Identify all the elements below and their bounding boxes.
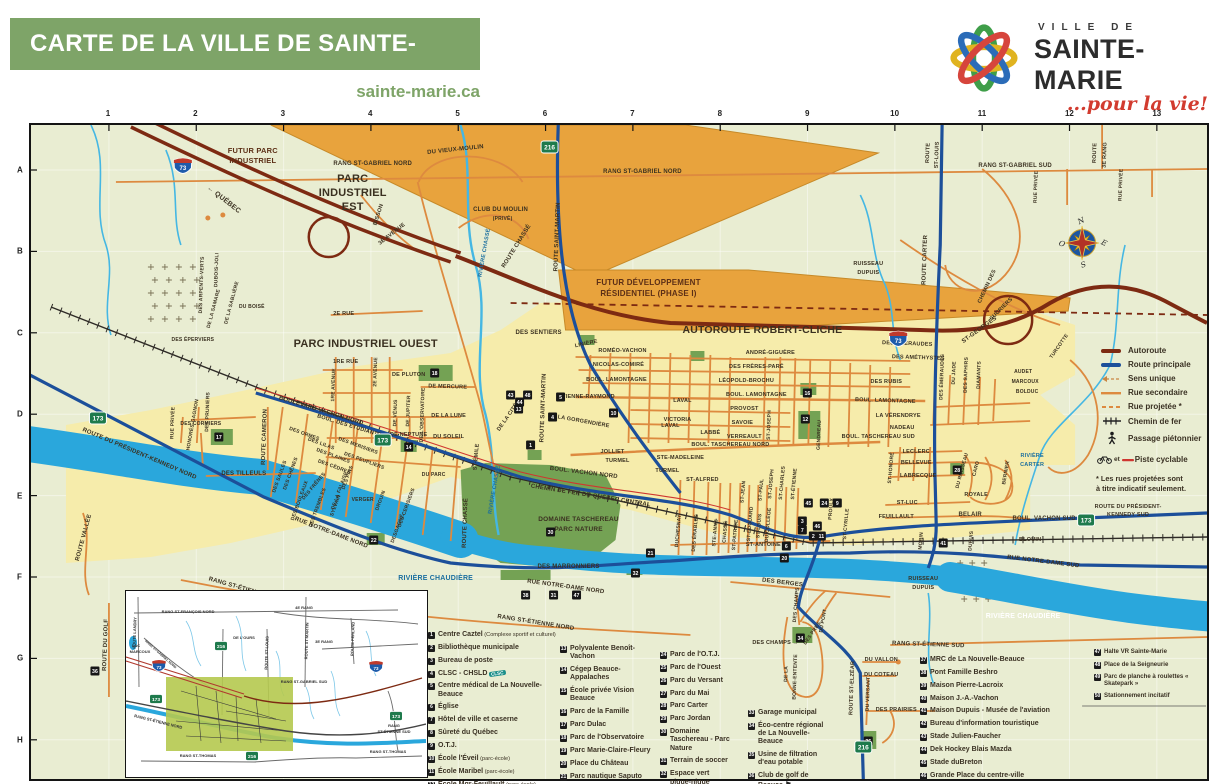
map-label: LABBÉ	[700, 428, 720, 436]
grid-col-label: 10	[890, 109, 899, 118]
inset-label: ROUTE ST-LOUIS	[263, 636, 269, 670]
route-shield: 216	[855, 741, 872, 753]
inset-label: ROUTE FERLAND	[349, 622, 355, 656]
poi-column: 1Centre Caztel (Complexe sportif et cult…	[428, 631, 558, 784]
route-shield: 173	[89, 412, 106, 424]
legend-item-label: Route principale	[1128, 360, 1191, 369]
clsc-icon: CLSC	[489, 669, 506, 677]
grid-col-label: 12	[1065, 109, 1074, 118]
map-label: DE LA LUNE	[431, 413, 466, 419]
route-shield: 216	[541, 141, 558, 153]
inset-label: ROUTE ST-MARTIN	[303, 622, 309, 659]
map-label: RIVIÈRE CHAUDIÈRE	[398, 573, 473, 582]
poi-item-label: Stationnement incitatif	[1104, 692, 1170, 699]
grid-row-label: E	[17, 491, 22, 500]
map-label: 1RE AVENUE	[330, 368, 337, 402]
map-label: BLOUIN	[1019, 537, 1041, 543]
svg-text:21: 21	[648, 551, 654, 557]
svg-text:6: 6	[785, 544, 788, 550]
poi-number-badge: 1	[428, 632, 435, 639]
legend-item: Chemin de fer	[1096, 416, 1208, 426]
map-label: CLUB DU MOULIN	[473, 207, 528, 213]
inset-label: MARCOUX	[130, 649, 151, 654]
route-shield: 173	[390, 712, 403, 721]
poi-number-badge: 20	[560, 761, 567, 768]
map-label: ST-ANTOINE	[746, 542, 781, 548]
map-label: PARC	[337, 173, 368, 185]
inset-label: RANG ST-THOMAS	[180, 753, 217, 758]
legend-item-label: Rue projetée *	[1128, 402, 1182, 411]
map-label: DU BOISÉ	[239, 302, 265, 310]
poi-item: 6Église	[428, 703, 558, 711]
poi-item-label: Parc de l'Observatoire	[570, 734, 644, 742]
poi-item: 39Maison Pierre-Lacroix	[920, 682, 1092, 690]
map-label: RÉSIDENTIEL (PHASE I)	[600, 289, 696, 298]
poi-item: 45Stade duBreton	[920, 759, 1092, 767]
page-title: CARTE DE LA VILLE DE SAINTE-MARIE	[10, 18, 480, 70]
poi-number-badge: 16	[560, 709, 567, 716]
poi-item-label: Parc du Versant	[670, 677, 723, 685]
svg-text:9: 9	[836, 501, 839, 507]
poi-badge: 3	[798, 517, 807, 526]
svg-text:44: 44	[517, 400, 523, 406]
map-label: PROVOST	[730, 406, 759, 412]
poi-number-badge: 28	[660, 703, 667, 710]
poi-item: 15École privée Vision Beauce	[560, 687, 654, 704]
svg-text:22: 22	[371, 538, 377, 544]
svg-text:47: 47	[574, 593, 580, 599]
poi-item-label: Parc de planche à roulettes « Skatepark …	[1104, 673, 1206, 687]
map-label: ST-JOSEPH	[766, 410, 773, 440]
grid-col-label: 5	[455, 109, 459, 118]
svg-text:45: 45	[805, 501, 811, 507]
svg-text:216: 216	[248, 754, 256, 760]
logo-tagline: ...pour la vie!	[1034, 93, 1208, 115]
poi-number-badge: 21	[560, 774, 567, 781]
map-label: TURMEL	[655, 468, 679, 474]
poi-number-badge: 8	[428, 730, 435, 737]
poi-item-label: Polyvalente Benoît-Vachon	[570, 645, 654, 662]
map-label: INDUSTRIEL	[319, 187, 387, 199]
page: CARTE DE LA VILLE DE SAINTE-MARIE sainte…	[0, 0, 1214, 784]
poi-badge: 5	[556, 393, 565, 402]
poi-item-label: Place de la Seigneurie	[1104, 661, 1168, 668]
map-label: ROUTE	[1092, 143, 1099, 164]
map-label: CARTER	[1020, 462, 1044, 468]
poi-item-label: Parc Marie-Claire-Fleury	[570, 747, 651, 755]
poi-badge: 14	[404, 443, 413, 452]
poi-badge: 30	[546, 528, 555, 537]
inset-label: RANG ST-THOMAS	[370, 749, 407, 754]
grid-col-label: 6	[543, 109, 547, 118]
poi-number-badge: 24	[660, 652, 667, 659]
svg-text:4: 4	[551, 415, 554, 421]
map-label: DU VERSANT	[865, 677, 872, 712]
poi-item-label: Stade Julien-Faucher	[930, 733, 1001, 741]
poi-badge: 10	[609, 409, 618, 418]
poi-column: 13Polyvalente Benoît-Vachon14Cégep Beauc…	[560, 645, 654, 784]
map-label: FUTUR DÉVELOPPEMENT	[596, 278, 700, 287]
poi-number-badge: 40	[920, 696, 927, 703]
poi-badge: 32	[631, 569, 640, 578]
map-label: TURMEL	[605, 458, 629, 464]
map-label: RANG ST-GABRIEL NORD	[333, 161, 412, 167]
svg-text:73: 73	[373, 666, 379, 671]
legend-item-label: Passage piétonnier	[1128, 434, 1201, 443]
poi-item-label: MRC de La Nouvelle-Beauce	[930, 656, 1025, 664]
inset-overview-map: RANG ST-FRANÇOIS NORDROUTE ST-MARTIN4E R…	[125, 590, 428, 778]
poi-column: 24Parc de l'O.T.J.25Parc de l'Ouest26Par…	[660, 651, 730, 784]
legend-item: Passage piétonnier	[1096, 431, 1208, 445]
map-label: VERGER	[352, 497, 374, 503]
poi-number-badge: 41	[920, 708, 927, 715]
map-label: RIVIÈRE	[1020, 451, 1043, 459]
poi-item-label: Grande Place du centre-ville	[930, 772, 1024, 780]
website-url: sainte-marie.ca	[10, 82, 480, 102]
poi-number-badge: 31	[660, 758, 667, 765]
poi-item-label: Église	[438, 703, 459, 711]
grid-col-label: 8	[718, 109, 722, 118]
poi-item-label: Parc de l'Ouest	[670, 664, 721, 672]
grid-row-label: F	[17, 573, 22, 582]
poi-item-label: École l'Éveil (parc-école)	[438, 755, 510, 763]
inset-highlight-extent	[166, 677, 293, 751]
map-label: DE NEPTUNE	[390, 432, 427, 438]
principale-symbol-icon	[1096, 361, 1128, 369]
grid-row-label: B	[17, 247, 23, 256]
legend-item: Route principale	[1096, 360, 1208, 369]
poi-item-label: Bibliothèque municipale	[438, 644, 519, 652]
legend-item-label: Autoroute	[1128, 346, 1166, 355]
map-label: VERREAULT	[727, 434, 762, 440]
poi-item: 25Parc de l'Ouest	[660, 664, 730, 672]
poi-number-badge: 25	[660, 665, 667, 672]
map-label: LECLERC	[903, 449, 930, 455]
route-shield: 73	[369, 661, 383, 672]
poi-badge: 21	[646, 549, 655, 558]
poi-item: 8Sûreté du Québec	[428, 729, 558, 737]
svg-text:73: 73	[895, 339, 902, 345]
poi-item-label: Maison J.-A.-Vachon	[930, 695, 998, 703]
grid-col-label: 7	[630, 109, 634, 118]
poi-item: 29Parc Jordan	[660, 715, 730, 723]
map-label: DES TILLEULS	[221, 471, 266, 477]
map-label: BELAIR	[958, 512, 982, 518]
map-label: DES ÉPERVIERS	[172, 335, 215, 343]
poi-number-badge: 35	[748, 752, 755, 759]
poi-item: 11École Maribel (parc-école)	[428, 768, 558, 776]
poi-item: 18Parc de l'Observatoire	[560, 734, 654, 742]
svg-text:10: 10	[611, 411, 617, 417]
poi-number-badge: 2	[428, 645, 435, 652]
legend-item-label: Rue secondaire	[1128, 388, 1188, 397]
poi-item-label: Bureau d'information touristique	[930, 720, 1039, 728]
poi-number-badge: 29	[660, 716, 667, 723]
pieton-symbol-icon	[1096, 431, 1128, 445]
grid-col-label: 1	[106, 109, 110, 118]
logo-loops-icon	[938, 12, 1030, 109]
poi-badge: 43	[506, 391, 515, 400]
poi-item-label: Parc du Mai	[670, 690, 709, 698]
svg-text:7: 7	[801, 528, 804, 534]
svg-text:216: 216	[858, 744, 869, 751]
map-label: 2E AVENUE	[372, 357, 379, 387]
poi-badge: 36	[90, 667, 99, 676]
map-label: RANG ST-GABRIEL NORD	[603, 169, 682, 175]
grid-row-label: C	[17, 328, 23, 337]
map-label: AUTOROUTE ROBERT-CLICHE	[682, 325, 842, 336]
poi-item-label: Usine de filtration d'eau potable	[758, 751, 828, 768]
grid-col-label: 3	[281, 109, 285, 118]
map-label: AUDET	[1014, 369, 1032, 375]
poi-item: 36Club de golf de Beauce⚑	[748, 772, 828, 784]
svg-text:14: 14	[406, 445, 412, 451]
map-label: EST	[342, 201, 364, 213]
poi-item: 19Parc Marie-Claire-Fleury	[560, 747, 654, 755]
poi-item-label: Pont Famille Beshro	[930, 669, 998, 677]
poi-item: 32Espace vert pique-nique	[660, 770, 730, 784]
poi-number-badge: 43	[920, 734, 927, 741]
poi-badge: 1	[526, 441, 535, 450]
poi-item: 40Maison J.-A.-Vachon	[920, 695, 1092, 703]
legend-item-label: Chemin de fer	[1128, 417, 1181, 426]
poi-item: 33Garage municipal	[748, 709, 828, 717]
svg-text:73: 73	[156, 665, 162, 670]
poi-item-label: Parc nautique Saputo	[570, 773, 642, 781]
map-label: GENDREAU	[816, 420, 823, 451]
poi-item: 16Parc de la Famille	[560, 708, 654, 716]
poi-badge: 9	[833, 499, 842, 508]
grid-row-label: A	[17, 166, 23, 175]
legend-item: Sens unique	[1096, 374, 1208, 383]
route-shield: 173	[150, 695, 163, 704]
svg-text:32: 32	[633, 571, 639, 577]
poi-number-badge: 42	[920, 721, 927, 728]
poi-badge: 28	[953, 466, 962, 475]
map-label: INDUSTRIEL	[229, 156, 276, 165]
map-label: SAVOIE	[732, 420, 754, 426]
poi-badge: 47	[572, 591, 581, 600]
map-label: DES CORMIERS	[180, 421, 221, 427]
map-label: ROUTE	[925, 143, 932, 164]
svg-text:38: 38	[523, 593, 529, 599]
map-label: LABRECQUE	[900, 473, 937, 479]
inset-label: 3E RANG	[315, 639, 333, 644]
poi-item-label: Bureau de poste	[438, 657, 493, 665]
map-label: ROYALE	[964, 492, 988, 498]
poi-item: 41Maison Dupuis - Musée de l'aviation	[920, 707, 1092, 715]
poi-item-label: Espace vert pique-nique	[670, 770, 730, 784]
poi-badge: 11	[817, 532, 826, 541]
poi-badge: 44	[515, 398, 524, 407]
svg-text:18: 18	[432, 371, 438, 377]
poi-item-label: Place du Château	[570, 760, 628, 768]
poi-item: 47Halte VR Sainte-Marie	[1094, 648, 1206, 656]
map-label: LAVAL	[673, 398, 692, 404]
map-label: DE PLUTON	[392, 372, 425, 378]
svg-text:3: 3	[801, 519, 804, 525]
poi-item: 46Grande Place du centre-ville	[920, 772, 1092, 780]
poi-badge: 46	[813, 522, 822, 531]
poi-item: 21Parc nautique Saputo	[560, 773, 654, 781]
poi-number-badge: 11	[428, 769, 435, 776]
poi-item: 3Bureau de poste	[428, 657, 558, 665]
poi-column: 33Garage municipal34Éco-centre régional …	[748, 709, 828, 784]
svg-text:43: 43	[508, 393, 514, 399]
svg-text:13: 13	[516, 407, 522, 413]
poi-item-label: Domaine Taschereau - Parc Nature	[670, 728, 730, 753]
inset-label: 4E RANG	[295, 605, 313, 610]
projetee-symbol-icon	[1096, 403, 1128, 411]
map-label: PARC NATURE	[554, 526, 603, 533]
map-label: KENNEDY SUD	[1107, 512, 1149, 518]
poi-badge: 12	[801, 415, 810, 424]
route-shield: 216	[246, 752, 259, 761]
svg-text:36: 36	[92, 669, 98, 675]
map-label: DU PARC	[422, 472, 446, 478]
grid-col-label: 4	[368, 109, 372, 118]
golf-flag-icon: ⚑	[785, 780, 792, 784]
poi-item: 43Stade Julien-Faucher	[920, 733, 1092, 741]
poi-badge: 22	[369, 536, 378, 545]
route-shield: 216	[215, 642, 228, 651]
inset-label: RANG ST-FRANÇOIS NORD	[162, 609, 215, 614]
map-label: DU VALLON	[865, 657, 898, 663]
poi-item: 49Parc de planche à roulettes « Skatepar…	[1094, 673, 1206, 687]
map-label: RIVIÈRE CHAUDIÈRE	[986, 611, 1061, 620]
map-label: ANDRÉ-GIGUÈRE	[746, 348, 795, 356]
poi-number-badge: 37	[920, 657, 927, 664]
poi-number-badge: 26	[660, 678, 667, 685]
poi-item: 38Pont Famille Beshro	[920, 669, 1092, 677]
poi-item: 28Parc Carter	[660, 702, 730, 710]
poi-badge: 18	[430, 369, 439, 378]
svg-text:73: 73	[180, 166, 187, 172]
legend-footnote: * Les rues projetées sontà titre indicat…	[1096, 474, 1208, 494]
inset-label: ST-ÉTIENNE SUD	[377, 729, 410, 734]
poi-number-badge: 36	[748, 773, 755, 780]
map-label: BOUL. TASCHEREAU NORD	[691, 442, 769, 448]
map-label: DUBOIS-JOLI	[213, 252, 220, 287]
map-label: BOUL. VACHON SUD	[1013, 516, 1077, 522]
poi-item-label: Cégep Beauce-Appalaches	[570, 666, 654, 683]
poi-number-badge: 14	[560, 667, 567, 674]
poi-item: 44Dek Hockey Blais Mazda	[920, 746, 1092, 754]
svg-text:31: 31	[551, 593, 557, 599]
autoroute-symbol-icon	[1096, 347, 1128, 355]
poi-item-label: Garage municipal	[758, 709, 817, 717]
svg-text:12: 12	[802, 417, 808, 423]
poi-item-label: Parc Carter	[670, 702, 708, 710]
map-label: ÉTIENNE-RAYMOND	[558, 392, 614, 400]
legend-item: Rue secondaire	[1096, 388, 1208, 397]
poi-number-badge: 44	[920, 747, 927, 754]
poi-item-label: Éco-centre régional de La Nouvelle-Beauc…	[758, 722, 828, 747]
map-label: LAVAL	[661, 423, 680, 429]
poi-badge: 7	[798, 526, 807, 535]
poi-number-badge: 9	[428, 743, 435, 750]
poi-item: 24Parc de l'O.T.J.	[660, 651, 730, 659]
poi-item: 1Centre Caztel (Complexe sportif et cult…	[428, 631, 558, 639]
map-label: ROMÉO-VACHON	[598, 346, 646, 354]
city-logo: VILLE DE SAINTE-MARIE ...pour la vie!	[938, 12, 1208, 115]
poi-badge: 41	[939, 539, 948, 548]
svg-text:17: 17	[216, 435, 222, 441]
svg-text:2: 2	[812, 534, 815, 540]
map-label: DIAMANTS	[976, 360, 983, 389]
svg-text:216: 216	[217, 644, 225, 650]
svg-text:173: 173	[93, 415, 104, 422]
legend-item-label: Sens unique	[1128, 374, 1176, 383]
poi-item-label: Parc de la Famille	[570, 708, 629, 716]
poi-number-badge: 38	[920, 670, 927, 677]
svg-text:5: 5	[559, 395, 562, 401]
poi-number-badge: 39	[920, 683, 927, 690]
poi-item-label: École privée Vision Beauce	[570, 687, 654, 704]
poi-item: 4CLSC - CHSLDCLSC	[428, 670, 558, 678]
map-label: DES SENTIERS	[515, 330, 561, 336]
map-label: RUISSEAU	[853, 261, 883, 267]
fer-symbol-icon	[1096, 416, 1128, 426]
map-label: NICOLAS-COMIRÉ	[593, 360, 644, 368]
poi-item: 9O.T.J.	[428, 742, 558, 750]
svg-text:24: 24	[821, 501, 827, 507]
grid-row-label: G	[17, 654, 23, 663]
poi-item-label: Dek Hockey Blais Mazda	[930, 746, 1012, 754]
poi-badge: 17	[214, 433, 223, 442]
map-label: DE LA	[783, 666, 790, 682]
poi-badge: 48	[523, 391, 532, 400]
map-label: BOUL. LAMONTAGNE	[586, 377, 647, 383]
map-label: ROUTE DU PRÉSIDENT-	[1095, 502, 1162, 510]
poi-number-badge: 13	[560, 646, 567, 653]
svg-text:173: 173	[392, 714, 400, 720]
map-label: BOUL. LAMONTAGNE	[726, 392, 787, 398]
poi-number-badge: 10	[428, 756, 435, 763]
poi-item-label: Maison Dupuis - Musée de l'aviation	[930, 707, 1050, 715]
poi-badge: 38	[521, 591, 530, 600]
poi-column: 37MRC de La Nouvelle-Beauce38Pont Famill…	[920, 656, 1092, 784]
grid-col-label: 9	[805, 109, 809, 118]
poi-item: 27Parc du Mai	[660, 690, 730, 698]
legend-item: etPiste cyclable	[1096, 450, 1208, 468]
svg-text:173: 173	[152, 697, 160, 703]
inset-label: RANG ST-GABRIEL SUD	[281, 679, 328, 684]
map-label: DES FRÈRES-PARÉ	[729, 362, 784, 370]
poi-number-badge: 50	[1094, 693, 1101, 700]
poi-item-label: Stade duBreton	[930, 759, 982, 767]
svg-text:41: 41	[940, 541, 946, 547]
poi-item-label: CLSC - CHSLDCLSC	[438, 670, 506, 678]
poi-item-label: Parc Dulac	[570, 721, 606, 729]
poi-item: 42Bureau d'information touristique	[920, 720, 1092, 728]
map-label: STE-MADELEINE	[657, 455, 705, 461]
poi-number-badge: 33	[748, 710, 755, 717]
poi-number-badge: 48	[1094, 662, 1101, 669]
poi-number-badge: 32	[660, 771, 667, 778]
poi-column: 47Halte VR Sainte-Marie48Place de la Sei…	[1094, 648, 1206, 705]
map-label: LÉOPOLD-BROCHU	[719, 376, 774, 384]
poi-item-label: Parc de l'O.T.J.	[670, 651, 720, 659]
logo-city-name: SAINTE-MARIE	[1034, 34, 1208, 96]
poi-number-badge: 7	[428, 717, 435, 724]
inset-label: RANG	[388, 723, 400, 728]
poi-item: 13Polyvalente Benoît-Vachon	[560, 645, 654, 662]
svg-text:28: 28	[954, 468, 960, 474]
map-label: PARC INDUSTRIEL OUEST	[294, 338, 438, 350]
map-label: ST-ALFRED	[686, 477, 719, 483]
poi-item: 12École Mgr-Feuillault (parc-école)	[428, 781, 558, 784]
